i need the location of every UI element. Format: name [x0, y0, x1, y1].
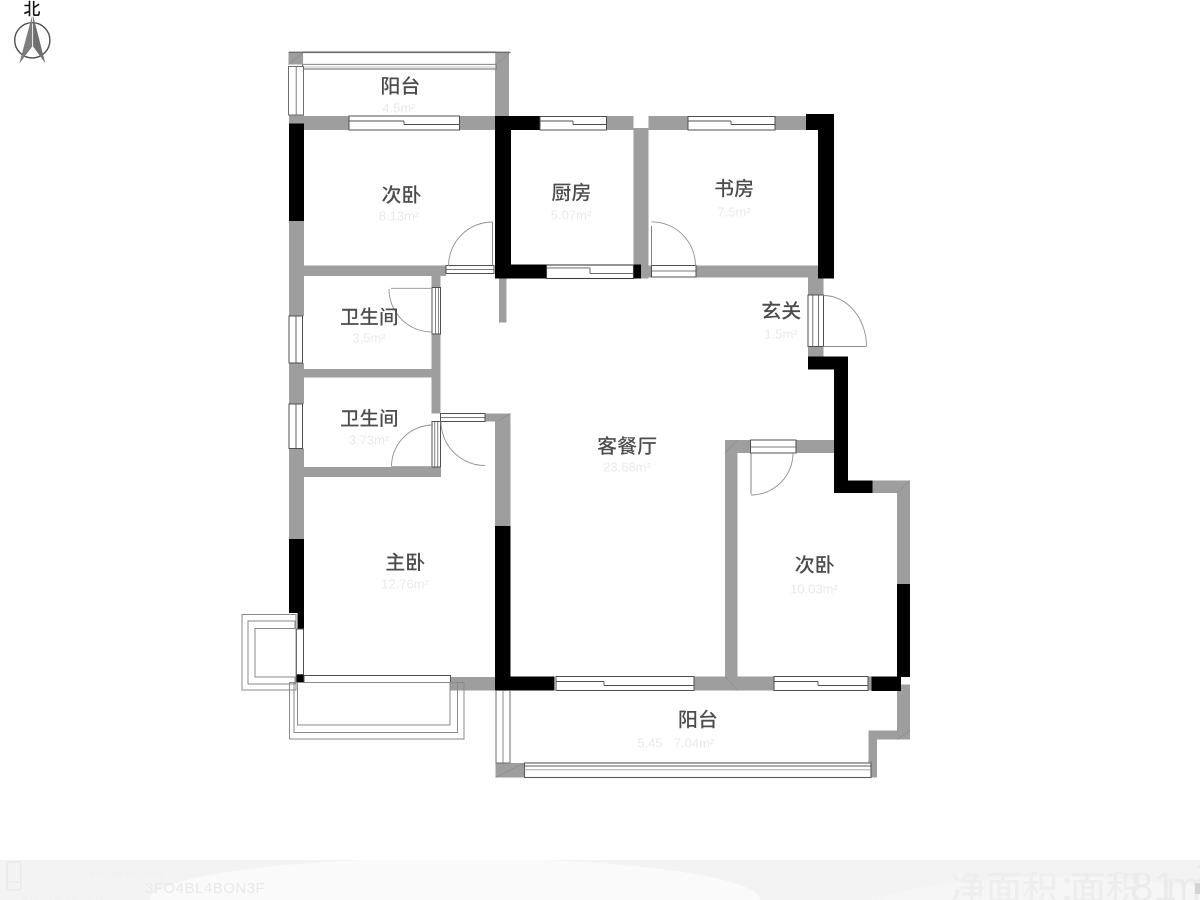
svg-text:m: m	[1166, 863, 1200, 900]
svg-text:10.03m²: 10.03m²	[790, 582, 838, 597]
svg-text:12.76m²: 12.76m²	[381, 577, 429, 592]
svg-text:5.07m²: 5.07m²	[551, 208, 592, 223]
svg-text:7.5m²: 7.5m²	[717, 205, 751, 220]
svg-text:4.5m²: 4.5m²	[382, 101, 416, 116]
svg-text:kujiale.co: kujiale.co	[22, 892, 104, 900]
svg-text:7.04m²: 7.04m²	[674, 736, 715, 751]
svg-text:kujiale.com: kujiale.com	[89, 868, 164, 880]
svg-text:3.73m²: 3.73m²	[349, 433, 390, 448]
svg-text:8.13m²: 8.13m²	[379, 209, 420, 224]
svg-text:1.5m²: 1.5m²	[764, 327, 798, 342]
svg-text:5.45: 5.45	[637, 736, 662, 751]
svg-text:23.68m²: 23.68m²	[603, 460, 651, 475]
svg-text:3.5m²: 3.5m²	[352, 331, 386, 346]
svg-text:3FO4BL4BON3F: 3FO4BL4BON3F	[145, 880, 265, 897]
